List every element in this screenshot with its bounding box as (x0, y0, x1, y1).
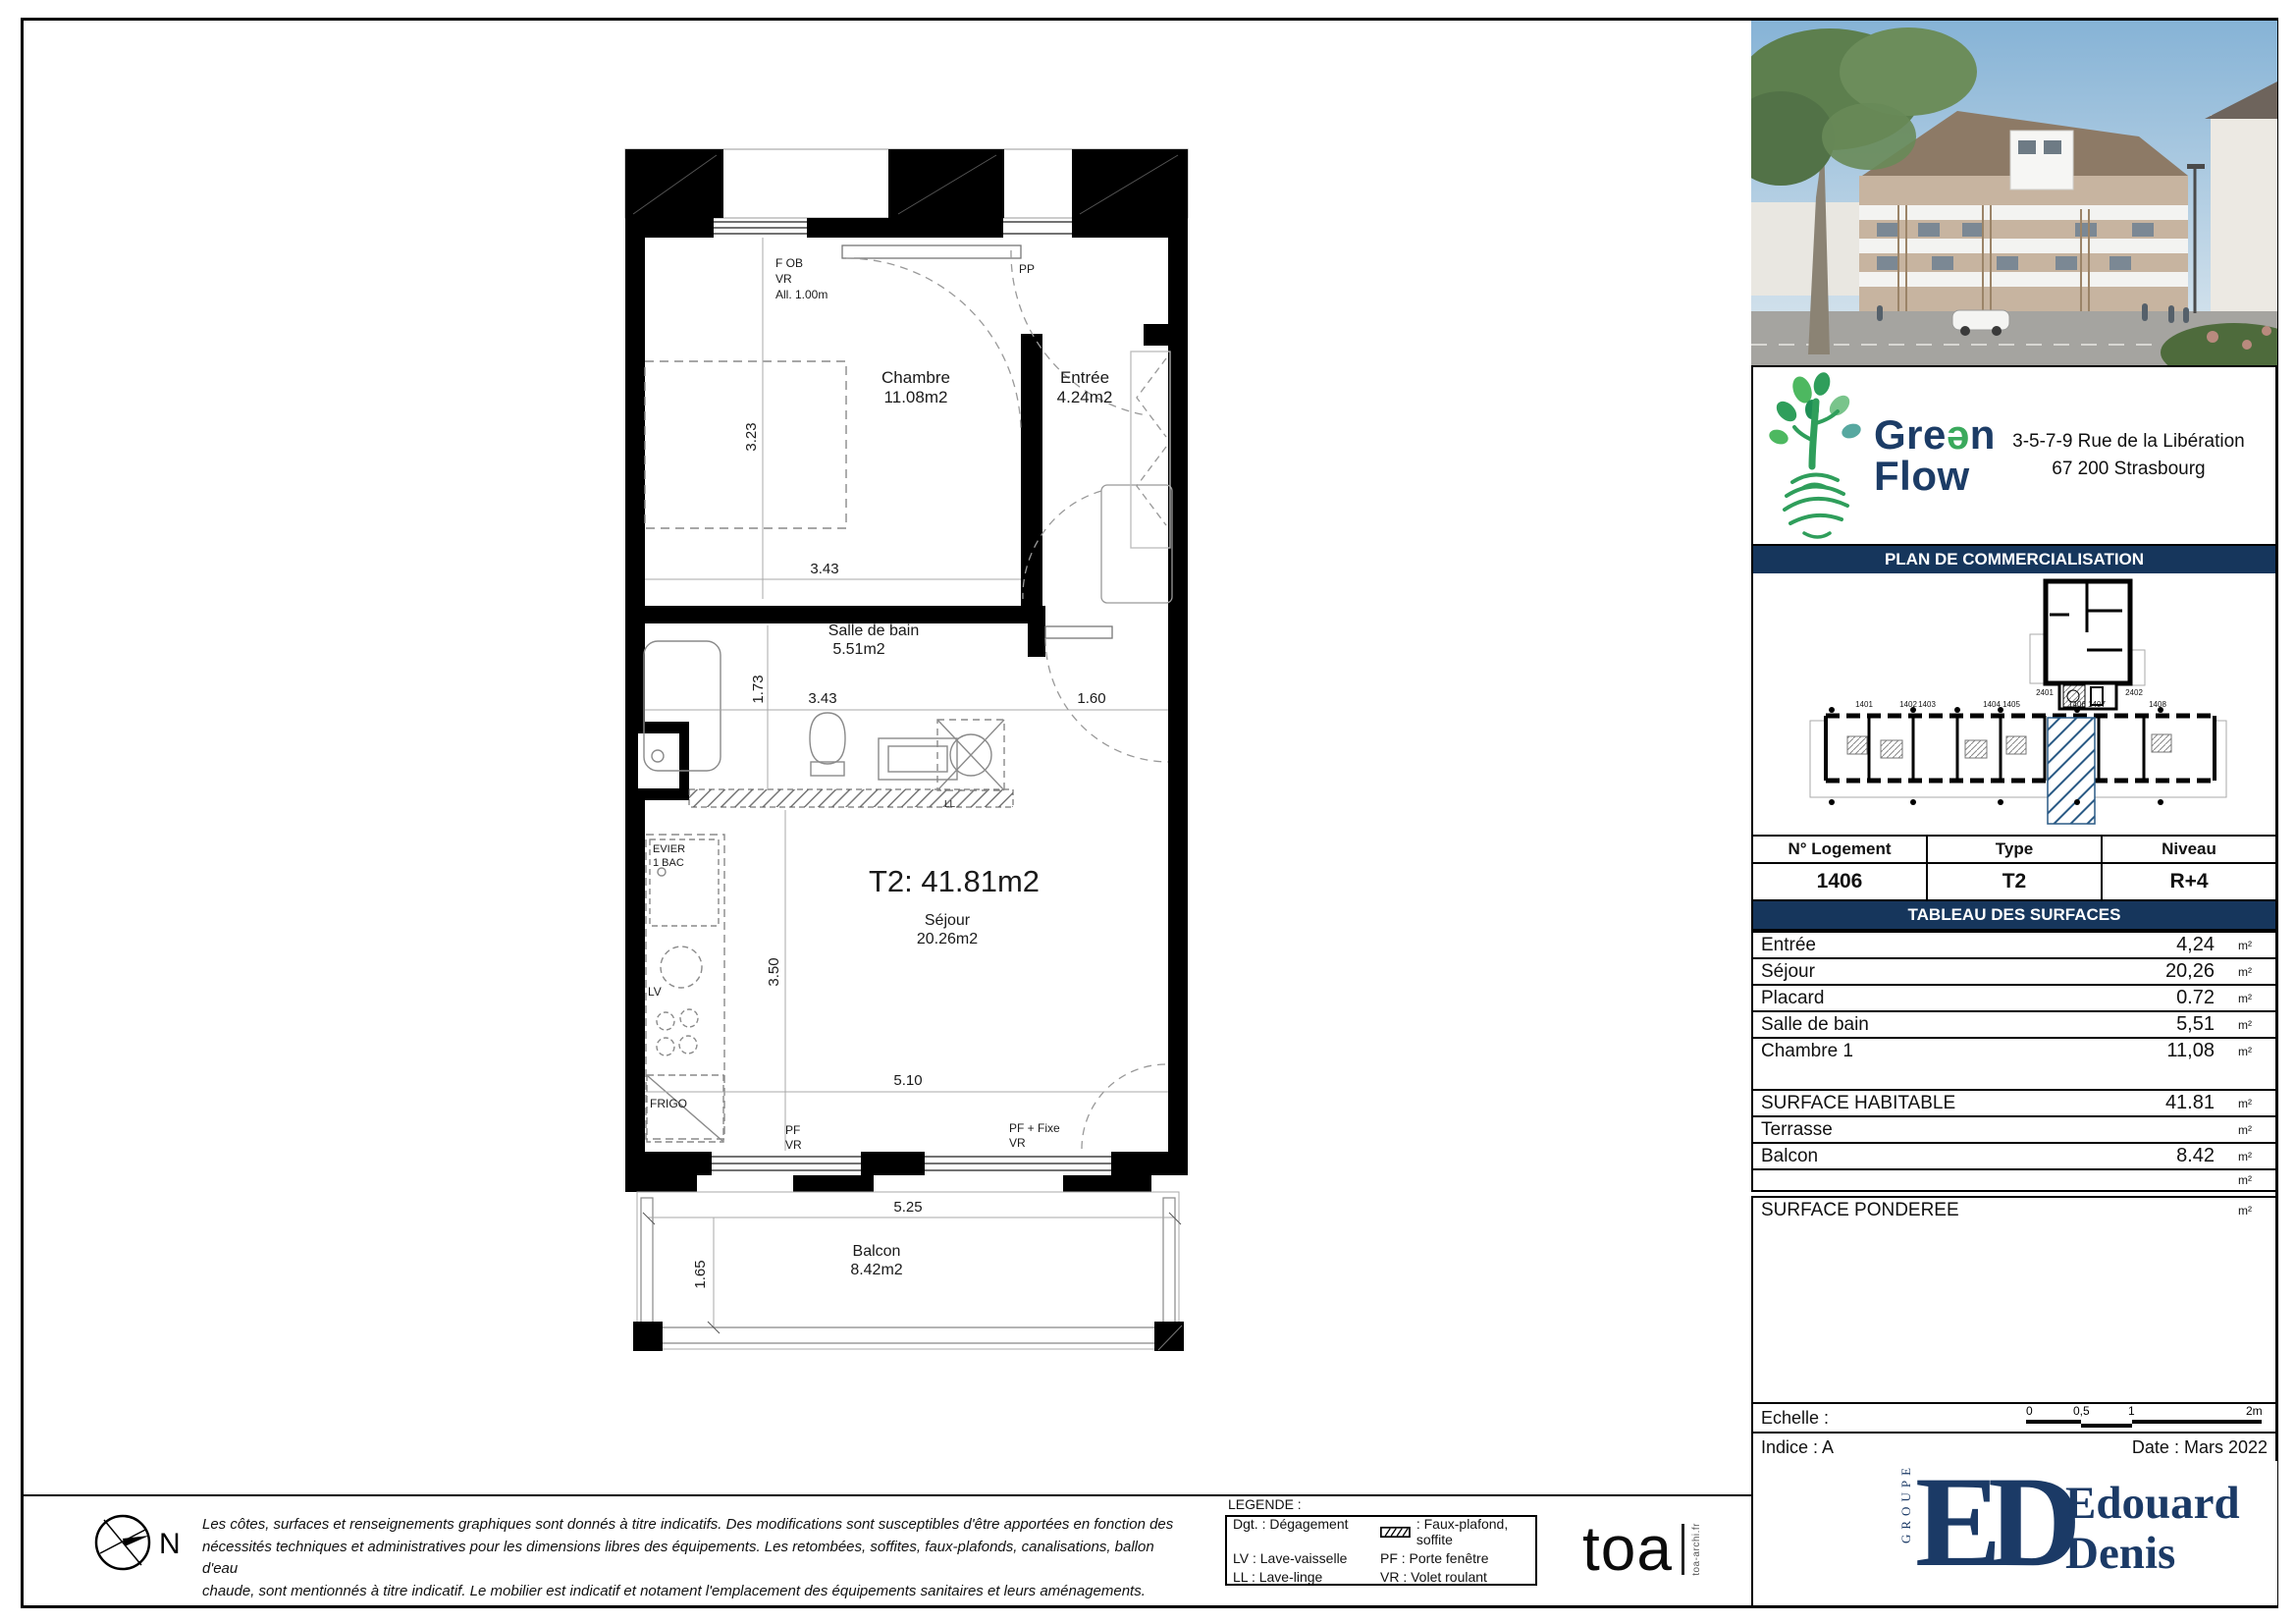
surface-unit: m² (2215, 1018, 2275, 1032)
surface-value: 11,08 (2126, 1040, 2215, 1062)
greenflow-wordmark: Greən Flow (1874, 414, 1996, 497)
dim-3-43-a: 3.43 (810, 561, 838, 577)
window-label-vr: VR (775, 272, 792, 286)
site-unit-1405: 1405 (2002, 700, 2020, 709)
plan-header-label: PLAN DE COMMERCIALISATION (1885, 550, 2144, 569)
surface-label: Balcon (1753, 1146, 2126, 1167)
surface-value: 5,51 (2126, 1013, 2215, 1036)
furniture (644, 361, 1004, 1142)
brand-address-box: Greən Flow 3-5-7-9 Rue de la Libération … (1751, 365, 2277, 546)
surfaces-table-header: TABLEAU DES SURFACES (1751, 899, 2277, 931)
disclaimer-text: Les côtes, surfaces et renseignements gr… (202, 1514, 1194, 1602)
table-row: m² (1751, 1168, 2277, 1192)
unit-header-type: Type (1926, 837, 2101, 862)
room-entree-area: 4.24m2 (1057, 388, 1113, 406)
date-label: Date : Mars 2022 (2132, 1437, 2268, 1458)
surface-unit: m² (2215, 992, 2275, 1005)
dim-1-73: 1.73 (750, 675, 767, 703)
scale-tick-2m: 2m (2246, 1404, 2263, 1418)
developer-logo: GROUPE ED Edouard Denis (1751, 1461, 2277, 1605)
window-label-pf-fixe: PF + Fixe (1009, 1121, 1060, 1135)
legend-ll: LL : Lave-linge (1233, 1569, 1380, 1585)
plan-commercialisation-header: PLAN DE COMMERCIALISATION (1751, 546, 2277, 575)
room-sejour-area: 20.26m2 (917, 931, 978, 947)
architect-logo: toa toa-archi.fr (1582, 1504, 1747, 1595)
floor-plan: F OB VR All. 1.00m PP Chambre 11.08m2 En… (587, 137, 1235, 1384)
balcony (633, 1192, 1184, 1351)
surface-label: Chambre 1 (1753, 1041, 2126, 1062)
surface-label: Séjour (1753, 961, 2126, 983)
room-balcon-name: Balcon (853, 1243, 901, 1260)
legend-faux-plafond: : Faux-plafond, soffite (1380, 1516, 1529, 1547)
table-row: Placard 0.72 m² (1751, 984, 2277, 1012)
legend-box: Dgt. : Dégagement : Faux-plafond, soffit… (1225, 1515, 1537, 1586)
disclaimer-line2: nécessités techniques et administratives… (202, 1537, 1194, 1581)
disclaimer-line3: chaude, sont mentionnés à titre indicati… (202, 1581, 1194, 1603)
table-row: Terrasse m² (1751, 1115, 2277, 1144)
legend-title: LEGENDE : (1228, 1496, 1302, 1512)
room-sdb-name: Salle de bain (828, 622, 920, 639)
developer-name: Edouard Denis (2065, 1479, 2240, 1579)
footer-divider (23, 1494, 1751, 1496)
surface-unit: m² (2215, 1123, 2275, 1137)
room-chambre-area: 11.08m2 (884, 388, 948, 406)
site-unit-2401: 2401 (2036, 688, 2054, 697)
address-line1: 3-5-7-9 Rue de la Libération (1996, 428, 2262, 456)
surface-value: 8.42 (2126, 1145, 2215, 1167)
site-unit-1402: 1402 (1899, 700, 1917, 709)
monogram-e: E (1915, 1449, 1988, 1594)
scale-tick-0: 0 (2026, 1404, 2033, 1418)
door-label-pp: PP (1019, 262, 1035, 276)
table-row: SURFACE HABITABLE 41.81 m² (1751, 1089, 2277, 1117)
developer-name-line1: Edouard (2065, 1479, 2240, 1529)
window-label-allege: All. 1.00m (775, 288, 828, 301)
surface-unit: m² (2215, 965, 2275, 979)
scale-tick-05: 0,5 (2073, 1404, 2090, 1418)
surface-unit: m² (2215, 1204, 2275, 1217)
surface-value: 41.81 (2126, 1092, 2215, 1114)
label-ll: LL (944, 799, 956, 810)
room-sdb-area: 5.51m2 (832, 641, 884, 658)
site-building (1810, 707, 2226, 824)
scale-bar: 0 0,5 1 2m (2022, 1404, 2268, 1432)
legend-lv: LV : Lave-vaisselle (1233, 1550, 1380, 1566)
surface-label: Entrée (1753, 935, 2126, 956)
kitchen-label-frigo: FRIGO (650, 1097, 687, 1110)
balcony-bands (1859, 205, 2188, 287)
toa-divider (1682, 1524, 1684, 1575)
site-unit-1401: 1401 (1855, 700, 1873, 709)
window-label-fob: F OB (775, 256, 803, 270)
table-row: Entrée 4,24 m² (1751, 931, 2277, 959)
dim-5-25: 5.25 (893, 1199, 922, 1216)
plan-sheet: F OB VR All. 1.00m PP Chambre 11.08m2 En… (0, 0, 2296, 1623)
site-unit-2402: 2402 (2125, 688, 2143, 697)
site-unit-1404: 1404 (1983, 700, 2001, 709)
kitchen-label-bac: 1 BAC (653, 857, 684, 869)
room-sejour-name: Séjour (925, 912, 971, 929)
surface-label: Salle de bain (1753, 1014, 2126, 1036)
plan-title: T2: 41.81m2 (869, 864, 1040, 898)
windows (712, 222, 1111, 1170)
right-building (2211, 115, 2277, 315)
site-unit-1403: 1403 (1918, 700, 1936, 709)
toa-wordmark: toa (1582, 1524, 1673, 1574)
ed-monogram: ED (1915, 1457, 2067, 1587)
dim-5-10: 5.10 (893, 1072, 922, 1089)
dim-3-23: 3.23 (743, 422, 760, 451)
site-unit-1408: 1408 (2149, 700, 2166, 709)
north-compass: N (90, 1508, 198, 1582)
indice-label: Indice : A (1761, 1437, 1834, 1458)
dim-3-50: 3.50 (766, 957, 782, 986)
surface-value: 4,24 (2126, 934, 2215, 956)
unit-header-niveau: Niveau (2101, 837, 2275, 862)
greenflow-tree-icon (1765, 372, 1868, 539)
window-label-pf: PF (785, 1123, 800, 1137)
monogram-d: D (1988, 1449, 2067, 1594)
brand-n: n (1970, 411, 1996, 458)
kitchen-label-evier: EVIER (653, 843, 685, 855)
upper-structure (625, 149, 1188, 218)
kitchen-label-lv: LV (648, 985, 662, 999)
hatch-swatch-icon (1380, 1526, 1411, 1539)
toa-url: toa-archi.fr (1691, 1523, 1702, 1576)
surface-label: Terrasse (1753, 1119, 2126, 1141)
surface-label: SURFACE HABITABLE (1753, 1093, 2126, 1114)
brand-gre: Gre (1874, 411, 1947, 458)
unit-table-values: 1406 T2 R+4 (1751, 862, 2277, 901)
brand-flow: Flow (1874, 456, 1996, 497)
surface-label: SURFACE PONDEREE (1753, 1200, 2126, 1221)
dim-1-65: 1.65 (692, 1260, 709, 1288)
disclaimer-line1: Les côtes, surfaces et renseignements gr… (202, 1514, 1194, 1537)
unit-level: R+4 (2101, 864, 2275, 899)
groupe-label: GROUPE (1898, 1463, 1914, 1543)
soffit-band (689, 789, 1013, 807)
surface-unit: m² (2215, 1097, 2275, 1110)
table-tail-spacer (1751, 1222, 2277, 1402)
table-row: Balcon 8.42 m² (1751, 1142, 2277, 1170)
surface-value: 0.72 (2126, 987, 2215, 1009)
window-label-pf-fixe-vr: VR (1009, 1136, 1026, 1150)
scale-label: Echelle : (1753, 1408, 2022, 1429)
project-address: 3-5-7-9 Rue de la Libération 67 200 Stra… (1996, 428, 2275, 482)
surface-unit: m² (2215, 1045, 2275, 1058)
legend-dgt: Dgt. : Dégagement (1233, 1516, 1380, 1547)
table-row: SURFACE PONDEREE m² (1751, 1196, 2277, 1224)
dim-3-43-b: 3.43 (808, 690, 836, 707)
room-entree-name: Entrée (1060, 368, 1109, 387)
table-row: Salle de bain 5,51 m² (1751, 1010, 2277, 1039)
table-row: Séjour 20,26 m² (1751, 957, 2277, 986)
table-row: Chambre 1 11,08 m² (1751, 1037, 2277, 1065)
unit-header-logement: N° Logement (1753, 837, 1926, 862)
developer-name-line2: Denis (2065, 1529, 2240, 1579)
legend-pf: PF : Porte fenêtre (1380, 1550, 1529, 1566)
surfaces-header-label: TABLEAU DES SURFACES (1908, 905, 2121, 925)
window-label-pf-vr: VR (785, 1138, 802, 1152)
unit-table-header: N° Logement Type Niveau (1751, 835, 2277, 864)
room-balcon-area: 8.42m2 (850, 1262, 902, 1278)
surface-unit: m² (2215, 1173, 2275, 1187)
penthouse (2010, 131, 2073, 189)
north-label: N (159, 1528, 181, 1560)
surface-unit: m² (2215, 1150, 2275, 1163)
address-line2: 67 200 Strasbourg (1996, 456, 2262, 483)
site-unit-1406: 1406 (2068, 700, 2086, 709)
highlighted-unit-1406 (2048, 718, 2095, 824)
site-unit-1407: 1407 (2088, 700, 2106, 709)
site-key-plan: 1401 1402 1403 1404 1405 1406 1407 1408 … (1751, 573, 2277, 837)
unit-number: 1406 (1753, 864, 1926, 899)
dim-1-60: 1.60 (1077, 690, 1105, 707)
table-spacer (1751, 1063, 2277, 1089)
scale-row: Echelle : 0 0,5 1 2m (1751, 1402, 2277, 1434)
room-chambre-name: Chambre (881, 368, 950, 387)
surface-unit: m² (2215, 939, 2275, 952)
legend-vr: VR : Volet roulant (1380, 1569, 1529, 1585)
compass-needle (123, 1536, 149, 1546)
brand-schwa: ə (1947, 411, 1970, 458)
building-photo (1751, 21, 2277, 365)
surface-value: 20,26 (2126, 960, 2215, 983)
unit-type: T2 (1926, 864, 2101, 899)
surface-label: Placard (1753, 988, 2126, 1009)
scale-tick-1: 1 (2128, 1404, 2135, 1418)
